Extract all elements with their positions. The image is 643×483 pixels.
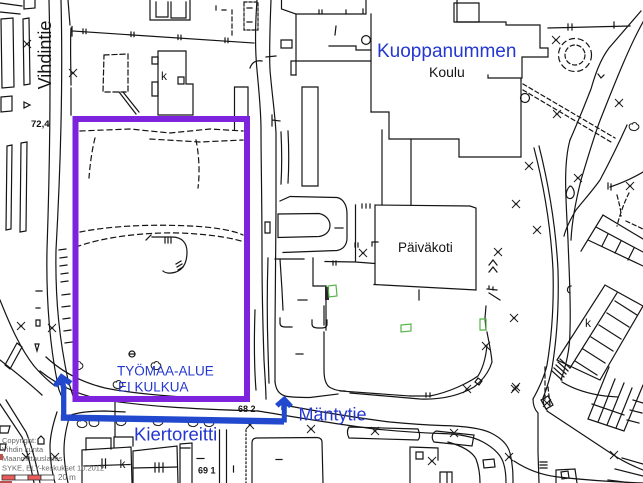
svg-text:Maanmittauslaitos: Maanmittauslaitos: [2, 454, 63, 463]
svg-text:20 m: 20 m: [58, 473, 76, 482]
svg-text:Vihdintie: Vihdintie: [35, 21, 55, 90]
svg-text:Kiertoreitti: Kiertoreitti: [134, 424, 217, 445]
svg-text:TYÖMAA-ALUE: TYÖMAA-ALUE: [117, 364, 214, 379]
svg-text:k: k: [585, 316, 592, 330]
svg-text:k: k: [161, 69, 168, 83]
svg-text:Koulu: Koulu: [429, 64, 465, 80]
svg-text:68 2: 68 2: [238, 404, 256, 414]
svg-text:EI KULKUA: EI KULKUA: [118, 380, 189, 395]
svg-text:Kuoppanummen: Kuoppanummen: [377, 41, 516, 62]
svg-text:k: k: [120, 457, 127, 471]
svg-text:Copyright:: Copyright:: [2, 436, 36, 445]
svg-text:SYKE, ELY-keskukset 10.2012: SYKE, ELY-keskukset 10.2012: [2, 464, 104, 473]
svg-text:Vihdin kunta: Vihdin kunta: [2, 445, 44, 454]
svg-text:Mäntytie: Mäntytie: [299, 405, 367, 425]
svg-text:72,4: 72,4: [31, 119, 50, 130]
svg-text:69 1: 69 1: [198, 466, 216, 476]
svg-text:Päiväkoti: Päiväkoti: [398, 240, 453, 255]
